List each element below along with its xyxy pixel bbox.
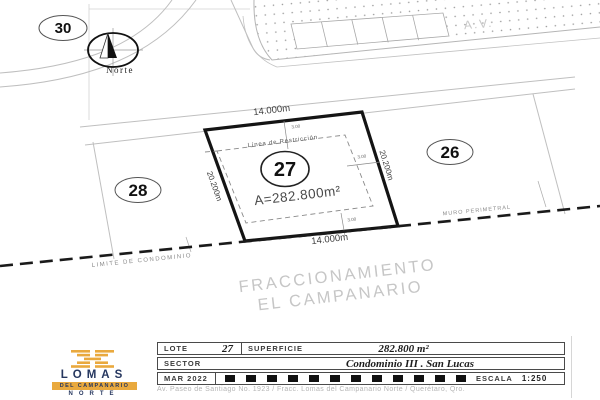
footer-address: Av. Paseo de Santiago No. 1923 / Fracc. … — [157, 386, 577, 393]
lot-30-badge: 30 — [39, 16, 87, 41]
lot-27-number: 27 — [274, 159, 296, 181]
graphic-scale-bar — [225, 375, 466, 382]
north-needle-outline — [100, 33, 108, 58]
lote-label: LOTE — [158, 344, 188, 353]
svg-text:30: 30 — [55, 20, 72, 37]
lote-cell: LOTE 27 — [158, 343, 242, 354]
street-label: A.V. — [463, 16, 494, 33]
escala-value: 1:250 — [522, 374, 547, 383]
escala-cell: ESCALA 1:250 — [476, 374, 552, 383]
superficie-value: 282.800 m² — [303, 343, 504, 355]
superficie-cell: SUPERFICIE 282.800 m² — [242, 343, 564, 355]
superficie-label: SUPERFICIE — [242, 344, 303, 353]
logo-gold-bar: DEL CAMPANARIO — [52, 382, 137, 390]
lot-28-badge: 28 — [115, 178, 161, 203]
north-label: Norte — [106, 65, 134, 75]
lot-27-parcel: 3.00 3.00 3.00 Línea de Restricción 27 A… — [205, 112, 398, 241]
titleblock-row-lote: LOTE 27 SUPERFICIE 282.800 m² — [157, 342, 565, 355]
dim-top: 14.000m — [253, 103, 291, 118]
date-cell: MAR 2022 — [158, 373, 216, 384]
svg-text:28: 28 — [129, 181, 148, 200]
logo-lomas: LOMAS — [48, 369, 140, 381]
bell-tower-icon — [71, 350, 115, 368]
sector-value: Condominio III . San Lucas — [256, 358, 564, 370]
escala-label: ESCALA — [476, 374, 513, 383]
logo-norte: NORTE — [48, 391, 140, 397]
sector-label: SECTOR — [158, 359, 201, 368]
logo-del-campanario: DEL CAMPANARIO — [60, 383, 130, 389]
titleblock-row-scale: MAR 2022 ESCALA 1:250 — [157, 372, 565, 385]
site-plan-drawing: A.V. 30 Norte — [0, 0, 600, 338]
svg-text:26: 26 — [441, 143, 460, 162]
plan-sheet: A.V. 30 Norte — [0, 0, 600, 400]
subdivision-name: FRACCIONAMIENTO EL CAMPANARIO — [238, 256, 437, 315]
lote-value: 27 — [222, 343, 233, 355]
date-value: MAR 2022 — [158, 374, 208, 383]
lot-26-badge: 26 — [427, 140, 473, 165]
sheet-edge-line — [571, 336, 572, 398]
titleblock-row-sector: SECTOR Condominio III . San Lucas — [157, 357, 565, 370]
